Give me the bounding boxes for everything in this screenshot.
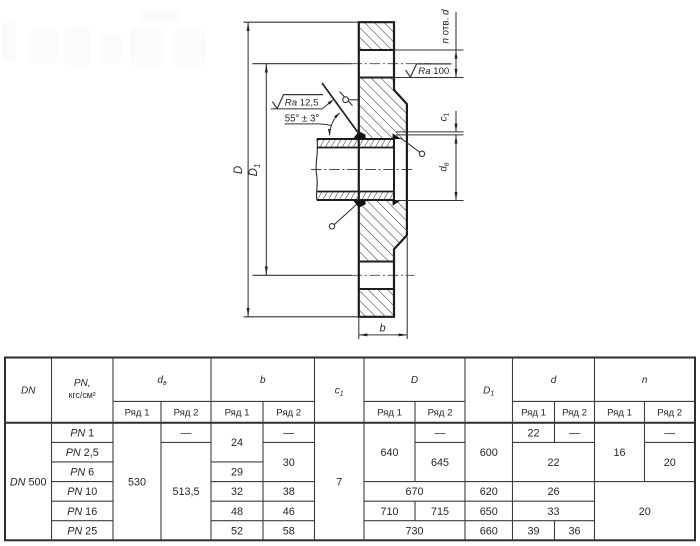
svg-text:PN 25: PN 25: [67, 525, 97, 537]
svg-text:620: 620: [480, 486, 498, 498]
svg-text:Ряд 1: Ряд 1: [125, 407, 150, 418]
svg-text:b: b: [260, 375, 266, 386]
svg-text:D: D: [411, 375, 418, 386]
svg-text:n: n: [642, 375, 648, 386]
svg-text:52: 52: [231, 525, 243, 537]
svg-text:D1: D1: [483, 386, 494, 398]
svg-text:d: d: [551, 375, 557, 386]
svg-text:Ряд 1: Ряд 1: [377, 407, 402, 418]
svg-text:48: 48: [231, 506, 243, 518]
svg-text:dв: dв: [439, 162, 451, 171]
svg-text:513,5: 513,5: [172, 486, 199, 498]
svg-text:22: 22: [527, 427, 539, 439]
svg-text:c1: c1: [439, 113, 451, 122]
svg-text:—: —: [435, 427, 446, 439]
svg-text:Ряд 1: Ряд 1: [225, 407, 250, 418]
svg-text:—: —: [181, 427, 192, 439]
svg-text:55° ± 3°: 55° ± 3°: [285, 114, 320, 125]
svg-text:710: 710: [380, 506, 398, 518]
svg-text:DN 500: DN 500: [10, 476, 47, 488]
svg-text:530: 530: [128, 476, 146, 488]
svg-text:Ряд 2: Ряд 2: [276, 407, 301, 418]
svg-text:Ряд 2: Ряд 2: [562, 407, 587, 418]
svg-text:—: —: [664, 427, 675, 439]
svg-text:PN 1: PN 1: [70, 427, 94, 439]
svg-text:b: b: [379, 322, 385, 334]
svg-text:650: 650: [480, 506, 498, 518]
svg-text:58: 58: [283, 525, 295, 537]
svg-text:46: 46: [283, 506, 295, 518]
svg-text:20: 20: [664, 457, 676, 469]
svg-text:кгс/см²: кгс/см²: [69, 390, 96, 400]
svg-text:PN 10: PN 10: [67, 486, 97, 498]
svg-text:D: D: [233, 166, 245, 174]
svg-text:32: 32: [231, 486, 243, 498]
svg-text:26: 26: [547, 486, 559, 498]
svg-text:—: —: [569, 427, 580, 439]
svg-text:PN 2,5: PN 2,5: [66, 447, 99, 459]
svg-text:—: —: [283, 427, 294, 439]
svg-text:36: 36: [568, 525, 580, 537]
svg-text:n отв. d: n отв. d: [441, 9, 452, 44]
svg-text:24: 24: [231, 437, 243, 449]
svg-text:PN,: PN,: [74, 378, 91, 389]
svg-text:Ra 100: Ra 100: [418, 66, 449, 77]
svg-text:Ряд 2: Ряд 2: [428, 407, 453, 418]
svg-text:DN: DN: [21, 386, 36, 397]
svg-text:20: 20: [639, 506, 651, 518]
svg-text:Ряд 2: Ряд 2: [174, 407, 199, 418]
svg-text:38: 38: [283, 486, 295, 498]
svg-text:600: 600: [480, 447, 498, 459]
svg-text:715: 715: [431, 506, 449, 518]
svg-text:dв: dв: [157, 375, 167, 387]
svg-text:39: 39: [527, 525, 539, 537]
svg-text:730: 730: [405, 525, 423, 537]
svg-text:D1: D1: [248, 164, 262, 177]
svg-text:670: 670: [405, 486, 423, 498]
svg-text:30: 30: [283, 457, 295, 469]
svg-text:Ряд 1: Ряд 1: [607, 407, 632, 418]
svg-text:660: 660: [480, 525, 498, 537]
svg-text:Ряд 2: Ряд 2: [657, 407, 682, 418]
svg-text:645: 645: [431, 457, 449, 469]
svg-text:33: 33: [547, 506, 559, 518]
svg-text:29: 29: [231, 467, 243, 479]
svg-text:640: 640: [380, 447, 398, 459]
svg-text:7: 7: [336, 476, 342, 488]
svg-text:Ra 12,5: Ra 12,5: [285, 98, 319, 109]
svg-text:16: 16: [613, 447, 625, 459]
svg-text:Ряд 1: Ряд 1: [521, 407, 546, 418]
svg-text:PN 16: PN 16: [67, 506, 97, 518]
svg-text:PN 6: PN 6: [70, 467, 94, 479]
svg-text:c1: c1: [335, 386, 344, 398]
svg-text:22: 22: [547, 457, 559, 469]
